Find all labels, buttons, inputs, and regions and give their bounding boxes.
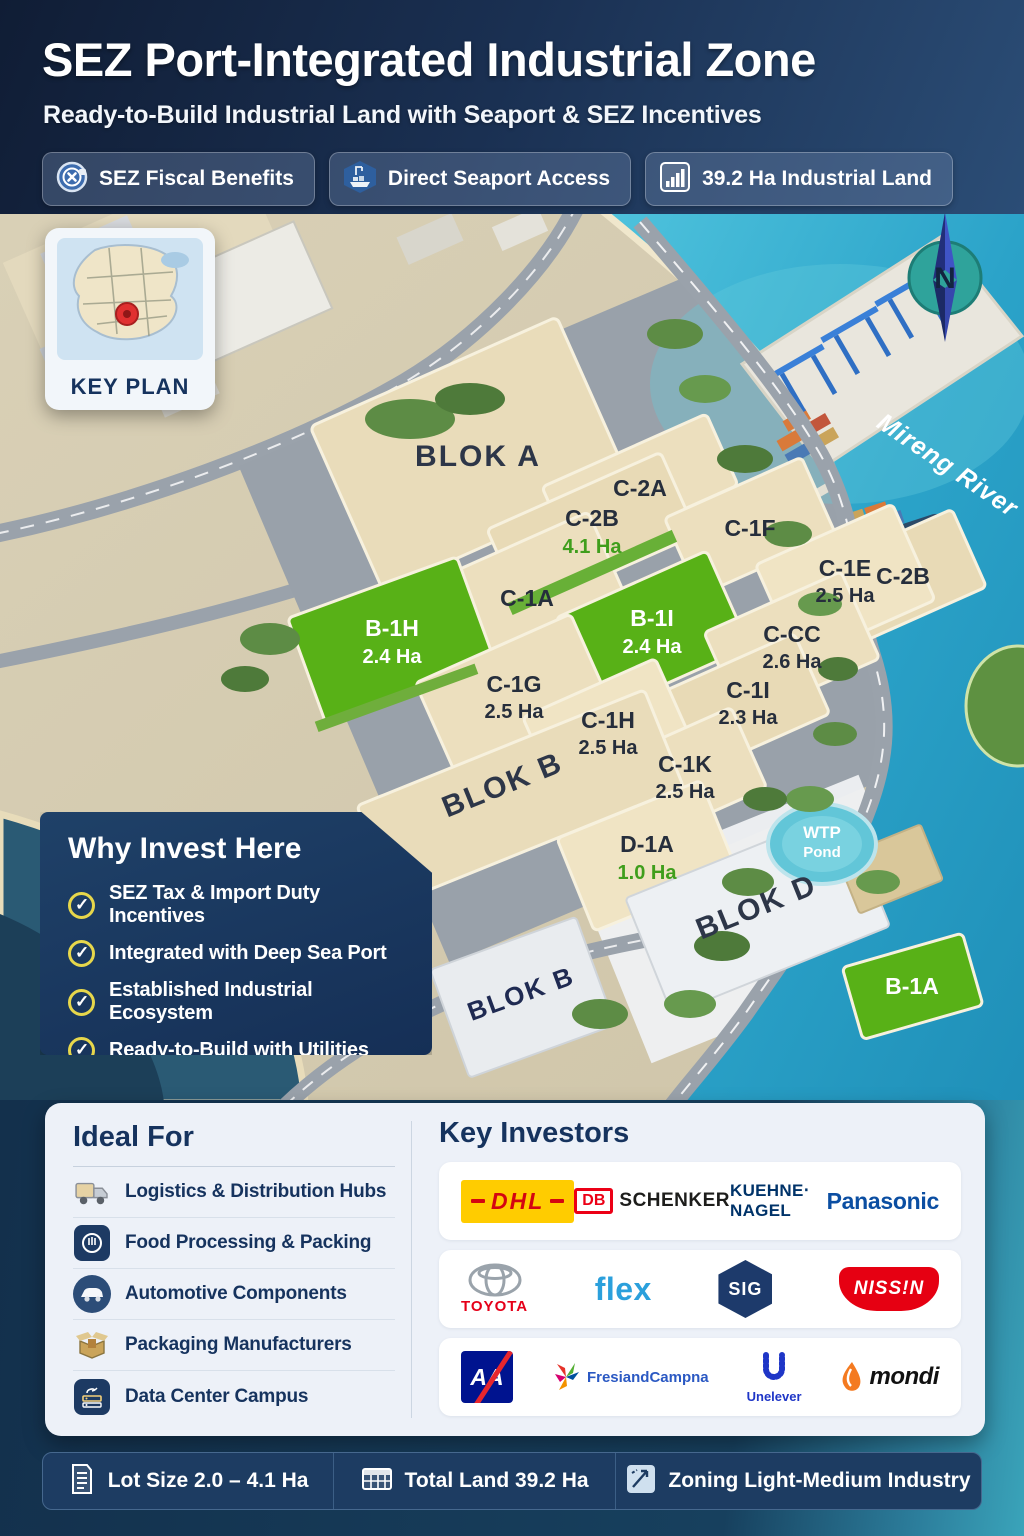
dhl-logo: DHL bbox=[461, 1180, 574, 1223]
lot-area: 1.0 Ha bbox=[618, 862, 678, 884]
why-invest-panel: Why Invest Here SEZ Tax & Import Duty In… bbox=[40, 812, 432, 1055]
unilever-logo: Unelever bbox=[747, 1351, 802, 1404]
investor-logo-row: DHL DB SCHENKER KUEHNE‧NAGEL Panasonic bbox=[439, 1162, 961, 1240]
lot-area: 2.6 Ha bbox=[763, 651, 823, 673]
stat-label: Lot Size 2.0 – 4.1 Ha bbox=[108, 1469, 309, 1493]
car-icon bbox=[73, 1275, 111, 1313]
mondi-flame-icon bbox=[839, 1361, 863, 1393]
lot-label: C-1G bbox=[487, 671, 542, 697]
blok-a-label: BLOK A bbox=[415, 440, 541, 473]
stat-label: Total Land 39.2 Ha bbox=[405, 1469, 589, 1493]
list-item: Packaging Manufacturers bbox=[73, 1320, 395, 1371]
why-invest-item-label: SEZ Tax & Import Duty Incentives bbox=[109, 882, 408, 928]
page-title: SEZ Port-Integrated Industrial Zone bbox=[42, 32, 816, 87]
page-subtitle: Ready-to-Build Industrial Land with Seap… bbox=[43, 101, 762, 130]
lot-label: D-1A bbox=[620, 831, 674, 857]
check-icon bbox=[68, 940, 95, 967]
stat-lot-size: Lot Size 2.0 – 4.1 Ha bbox=[43, 1453, 333, 1509]
lot-area: 2.5 Ha bbox=[816, 585, 876, 607]
ideal-for-label: Data Center Campus bbox=[125, 1386, 308, 1408]
lot-label: C-1K bbox=[658, 751, 712, 777]
ideal-for-label: Logistics & Distribution Hubs bbox=[125, 1181, 386, 1203]
bottom-info-card: Ideal For Logistics & Distribution Hubs bbox=[45, 1103, 985, 1436]
kuehne-nagel-logo: KUEHNE‧NAGEL bbox=[730, 1181, 827, 1221]
badge-fiscal-benefits: SEZ Fiscal Benefits bbox=[42, 152, 315, 206]
badge-seaport-access: Direct Seaport Access bbox=[329, 152, 631, 206]
lot-label: C-2B bbox=[565, 505, 619, 531]
frieslandcampina-logo: FresiandCampna bbox=[551, 1362, 709, 1392]
wtp-label: Pond bbox=[803, 844, 841, 861]
lot-label: C-1A bbox=[500, 585, 554, 611]
why-invest-item-label: Integrated with Deep Sea Port bbox=[109, 942, 387, 965]
bar-chart-icon bbox=[658, 160, 692, 199]
lot-label: C-2A bbox=[613, 475, 667, 501]
open-box-icon bbox=[73, 1326, 111, 1364]
unilever-u-icon bbox=[757, 1351, 791, 1387]
nissin-logo: NISS!N bbox=[839, 1267, 939, 1311]
check-icon bbox=[68, 989, 95, 1016]
header: SEZ Port-Integrated Industrial Zone Read… bbox=[0, 0, 1024, 214]
ideal-for-title: Ideal For bbox=[73, 1121, 395, 1167]
badge-label: Direct Seaport Access bbox=[388, 167, 610, 191]
lot-label: B-1H bbox=[365, 615, 419, 641]
why-invest-item: Established Industrial Ecosystem bbox=[68, 979, 408, 1025]
ideal-for-section: Ideal For Logistics & Distribution Hubs bbox=[73, 1121, 395, 1422]
investor-logo-row: TOYOTA flex SIG NISS!N bbox=[439, 1250, 961, 1328]
table-grid-icon bbox=[361, 1465, 393, 1498]
sig-logo: SIG bbox=[718, 1260, 772, 1318]
wtp-label: WTP bbox=[803, 823, 841, 842]
lot-area: 2.5 Ha bbox=[485, 701, 545, 723]
lot-label: C-1E bbox=[819, 555, 871, 581]
coin-percent-icon bbox=[55, 160, 89, 199]
key-plan-label: KEY PLAN bbox=[45, 374, 215, 400]
lot-label: B-1I bbox=[630, 605, 673, 631]
stat-zoning: Zoning Light-Medium Industry bbox=[615, 1453, 981, 1509]
stats-bar: Lot Size 2.0 – 4.1 Ha Total Land 39.2 Ha bbox=[42, 1452, 982, 1510]
why-invest-item: SEZ Tax & Import Duty Incentives bbox=[68, 882, 408, 928]
db-schenker-logo: DB SCHENKER bbox=[574, 1188, 730, 1214]
key-plan-card: KEY PLAN bbox=[45, 228, 215, 410]
badge-label: SEZ Fiscal Benefits bbox=[99, 167, 294, 191]
truck-icon bbox=[73, 1173, 111, 1211]
server-icon bbox=[73, 1378, 111, 1416]
lot-area: 4.1 Ha bbox=[563, 536, 623, 558]
why-invest-title: Why Invest Here bbox=[68, 832, 408, 866]
lot-label: B-1A bbox=[885, 973, 939, 999]
seaport-ship-icon bbox=[342, 160, 378, 199]
infographic-poster: SEZ Port-Integrated Industrial Zone Read… bbox=[0, 0, 1024, 1536]
list-item: Data Center Campus bbox=[73, 1371, 395, 1422]
badge-industrial-land: 39.2 Ha Industrial Land bbox=[645, 152, 953, 206]
lot-area: 2.5 Ha bbox=[579, 737, 639, 759]
zoning-icon bbox=[626, 1464, 656, 1499]
list-item: Food Processing & Packing bbox=[73, 1218, 395, 1269]
lot-area: 2.3 Ha bbox=[719, 707, 779, 729]
badge-label: 39.2 Ha Industrial Land bbox=[702, 167, 932, 191]
axa-logo: AA bbox=[461, 1351, 513, 1403]
list-item: Automotive Components bbox=[73, 1269, 395, 1320]
lot-label: C-CC bbox=[763, 621, 821, 647]
panasonic-logo: Panasonic bbox=[827, 1188, 939, 1215]
investor-logo-row: AA FresiandCampna bbox=[439, 1338, 961, 1416]
food-processing-icon bbox=[73, 1224, 111, 1262]
flex-logo: flex bbox=[595, 1271, 652, 1308]
ideal-for-label: Food Processing & Packing bbox=[125, 1232, 371, 1254]
divider bbox=[411, 1121, 412, 1418]
why-invest-item-label: Established Industrial Ecosystem bbox=[109, 979, 408, 1025]
document-icon bbox=[68, 1463, 96, 1500]
frieslandcampina-star-icon bbox=[551, 1362, 581, 1392]
toyota-emblem-icon bbox=[468, 1263, 522, 1297]
key-investors-section: Key Investors DHL DB SCHENKER KUEHNE‧NAG… bbox=[439, 1117, 961, 1426]
list-item: Logistics & Distribution Hubs bbox=[73, 1167, 395, 1218]
check-icon bbox=[68, 892, 95, 919]
compass-n-label: N bbox=[934, 262, 956, 295]
header-badges: SEZ Fiscal Benefits Direct Seaport Acces… bbox=[42, 152, 953, 206]
why-invest-item: Integrated with Deep Sea Port bbox=[68, 940, 408, 967]
ideal-for-label: Automotive Components bbox=[125, 1283, 347, 1305]
ideal-for-label: Packaging Manufacturers bbox=[125, 1334, 352, 1356]
lot-label: C-2B bbox=[876, 563, 930, 589]
red-location-pin bbox=[116, 303, 138, 325]
key-plan-map bbox=[57, 238, 203, 360]
lot-area: 2.4 Ha bbox=[363, 646, 423, 668]
lot-label: C-1F bbox=[724, 515, 775, 541]
stat-label: Zoning Light-Medium Industry bbox=[668, 1469, 970, 1493]
mondi-logo: mondi bbox=[839, 1361, 939, 1393]
lot-label: C-1H bbox=[581, 707, 635, 733]
lot-area: 2.5 Ha bbox=[656, 781, 716, 803]
toyota-logo: TOYOTA bbox=[461, 1263, 528, 1315]
lot-label: C-1I bbox=[726, 677, 769, 703]
key-investors-title: Key Investors bbox=[439, 1117, 961, 1150]
stat-total-land: Total Land 39.2 Ha bbox=[333, 1453, 615, 1509]
lot-area: 2.4 Ha bbox=[623, 636, 683, 658]
